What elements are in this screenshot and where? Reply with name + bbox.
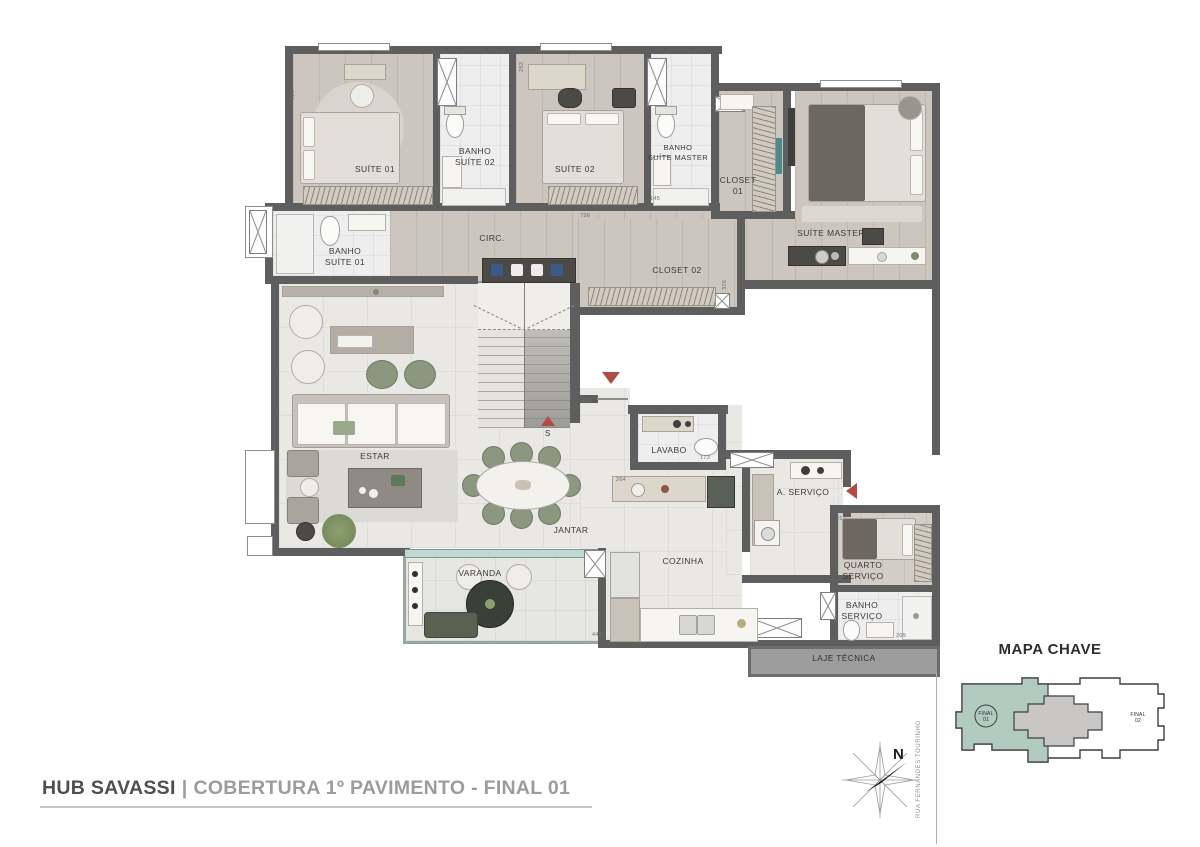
toilet [446,112,464,138]
staircase [478,283,570,428]
sink-counter [348,214,386,231]
wall [630,462,726,470]
closet-shelf [720,94,754,110]
armchair [404,360,436,389]
key-map: FINAL 01 FINAL 02 [952,674,1170,770]
room-label-cozinha: COZINHA [643,556,723,567]
sink-counter [642,416,694,432]
dimension-label: 326 [722,280,728,290]
compass-needle [866,762,907,792]
shower [902,596,932,640]
dresser [788,246,846,266]
window-sill [540,43,612,51]
stairs-up-arrow [541,416,555,426]
room-label-closet-02: CLOSET 02 [637,265,717,276]
wall [737,219,745,315]
shower [276,214,314,274]
room-label-closet-01: CLOSET 01 [708,175,768,197]
desk [528,64,586,90]
room-label-jantar: JANTAR [531,525,611,536]
laundry-tank [790,462,842,479]
chair [350,84,374,108]
oven-tower [707,476,735,508]
wall [265,276,478,284]
dining-table [476,461,570,510]
wall [630,405,638,470]
toilet-tank [444,106,466,115]
window-sill [820,80,902,88]
fridge [610,552,640,598]
toilet [843,620,860,641]
sideboard [282,286,444,297]
varanda-rail-left [403,556,406,644]
round-chair [289,305,323,339]
window-sill [245,450,275,524]
main-entry-arrow [602,372,620,384]
kitchen-sink-counter [640,608,758,642]
shaft-icon [730,452,774,468]
toilet [320,216,340,246]
dimension-label: 283 [519,62,525,72]
sink-counter [866,622,894,638]
desk [344,64,386,80]
wall [830,505,940,513]
wall [838,585,932,592]
dimension-label: 448 [592,632,602,638]
dimension-label: 173 [700,455,710,461]
room-label-suite-02: SUÍTE 02 [530,164,620,175]
svg-text:01: 01 [983,717,989,723]
wall [718,405,726,470]
street-line [936,672,937,844]
svg-text:02: 02 [1135,718,1141,724]
wall [285,46,293,211]
dimension-label: 209 [896,633,906,639]
tv-panel [788,108,795,166]
wall [932,505,940,648]
dimension-label: 212 [836,516,846,522]
plan-subtitle: COBERTURA 1º PAVIMENTO - FINAL 01 [193,777,570,799]
round-chair [291,350,325,384]
room-label-lavabo: LAVABO [634,445,704,456]
wall [742,459,750,552]
varanda-rail-bottom [403,641,598,644]
tall-cabinet [610,598,640,642]
north-label: N [893,746,904,763]
dimension-label: 320 [290,90,296,100]
room-label-banho-suite-01: BANHO SUÍTE 01 [310,246,380,268]
plant [322,514,356,548]
balcony-sofa [424,612,478,638]
balcony-bar [408,562,423,626]
project-name: HUB SAVASSI [42,777,176,799]
washing-machine [754,520,780,546]
hanging-clothes [588,287,716,306]
coffee-table [348,468,422,508]
street-label: RUA FERNANDES TOURINHO [916,668,922,818]
sofa [292,394,450,448]
shaft-icon [249,210,267,254]
room-label-estar: ESTAR [330,451,420,462]
wardrobe [914,524,932,582]
shaft-icon [584,550,606,578]
kitchen-counter [612,476,706,502]
plan-title: HUB SAVASSI|COBERTURA 1º PAVIMENTO - FIN… [42,777,570,800]
armchair [366,360,398,389]
dimension-label: 798 [580,213,590,219]
title-separator: | [176,777,194,799]
room-label-laje-tecnica: LAJE TÉCNICA [751,654,937,664]
compass-rose-icon [838,738,922,822]
service-entry-arrow [846,483,857,499]
dimension-label: 433 [581,398,591,404]
vanity-counter [848,247,926,265]
console-table [482,258,576,283]
side-table [898,96,922,120]
armchair [612,88,636,108]
room-label-suite-master: SUÍTE MASTER [776,228,886,239]
room-label-quarto-servico: QUARTO SERVIÇO [833,560,893,582]
wall [932,83,940,455]
laje-tecnica-block: LAJE TÉCNICA [748,646,940,677]
window-sill [247,536,273,556]
mirror [776,138,782,174]
room-label-suite-01: SUÍTE 01 [330,164,420,175]
shaft-icon [437,58,457,106]
wardrobe [548,186,638,205]
entry-door-leaf [597,398,628,400]
shaft-icon [647,58,667,106]
bed-quarto-servico [842,518,916,560]
room-label-circ: CIRC. [462,233,522,244]
chair [558,88,582,108]
room-label-banho-servico: BANHO SERVIÇO [833,600,891,622]
shower [442,188,506,206]
floor-lamp [296,522,315,541]
floor-plan-canvas: S [0,0,1200,847]
rug [802,206,922,222]
window-sill [318,43,390,51]
varanda-window [405,549,598,558]
room-label-banho-suite-master: BANHO SUÍTE MASTER [644,143,712,163]
toilet [657,112,675,138]
key-map-title: MAPA CHAVE [975,641,1125,658]
side-table [300,478,319,497]
shaft-icon [752,618,802,638]
dimension-label: 145 [650,196,660,202]
buffet-table [330,326,414,354]
wardrobe [303,186,433,205]
dimension-label: 264 [616,477,626,483]
stairs-direction-label: S [545,429,550,438]
wall [628,405,728,414]
wall [745,280,940,289]
toilet-tank [655,106,677,115]
wall [509,54,516,206]
pouf [287,497,319,524]
room-label-area-servico: A. SERVIÇO [763,487,843,498]
room-label-banho-suite-02: BANHO SUÍTE 02 [441,146,509,168]
room-label-varanda: VARANDA [440,568,520,579]
shower [653,188,709,206]
wall [265,548,410,556]
shaft-icon [714,293,730,309]
stair-rail [524,283,525,428]
pouf [287,450,319,477]
title-underline [40,806,592,808]
